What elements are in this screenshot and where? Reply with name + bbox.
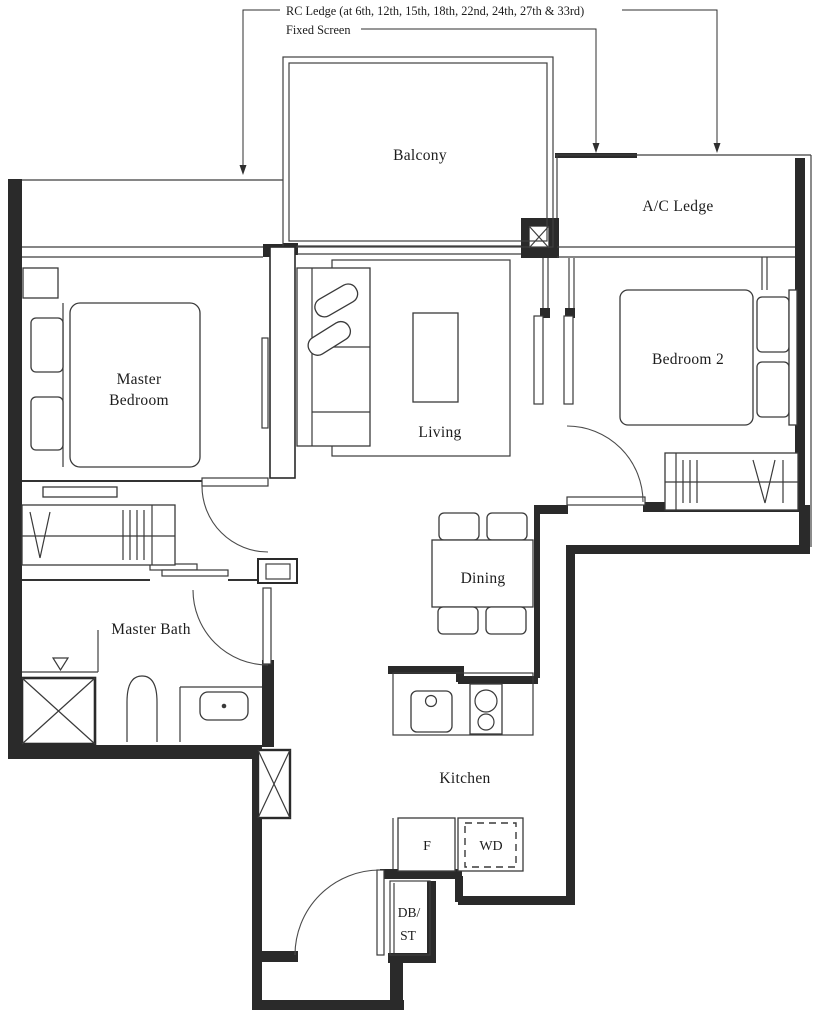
dining-label: Dining <box>461 570 506 587</box>
vanity <box>180 687 262 742</box>
chair <box>487 513 527 540</box>
nightstand <box>23 268 58 298</box>
master-bath-fixtures <box>22 658 262 744</box>
balcony-label: Balcony <box>393 147 447 164</box>
sofa <box>297 268 370 446</box>
bedroom2-label: Bedroom 2 <box>652 351 724 368</box>
fridge-label: F <box>423 839 431 854</box>
kitchen-label: Kitchen <box>439 770 490 787</box>
floor-plan-page: RC Ledge (at 6th, 12th, 15th, 18th, 22nd… <box>0 0 836 1024</box>
coffee-table <box>413 313 458 402</box>
floor-trap-icon <box>53 658 68 670</box>
pillow <box>31 397 63 450</box>
db-st-label-line2: ST <box>400 928 417 943</box>
entry-door <box>295 870 384 955</box>
chair <box>438 607 478 634</box>
master-bedroom-furniture <box>22 268 200 565</box>
master-bedroom-door <box>202 478 268 552</box>
pillow <box>757 297 789 352</box>
chair <box>439 513 479 540</box>
cooktop <box>470 684 502 734</box>
pillow <box>757 362 789 417</box>
kitchen-sink <box>411 691 452 732</box>
ac-ledge-label: A/C Ledge <box>642 198 713 215</box>
service-shaft-icon <box>529 226 549 248</box>
bedroom2-furniture <box>620 290 798 510</box>
chair <box>486 607 526 634</box>
pillow <box>31 318 63 372</box>
washer-dryer-label: WD <box>479 839 502 854</box>
rc-ledge-annotation: RC Ledge (at 6th, 12th, 15th, 18th, 22nd… <box>286 4 584 18</box>
master-bedroom-label-line1: Master <box>117 371 162 388</box>
corridor-shaft <box>258 750 290 818</box>
master-bath-door <box>193 588 271 665</box>
db-st-label-line1: DB/ <box>398 905 421 920</box>
leader-annotations: RC Ledge (at 6th, 12th, 15th, 18th, 22nd… <box>240 4 721 175</box>
bench <box>43 487 117 497</box>
bedroom2-wardrobe <box>665 453 798 510</box>
master-bath-label: Master Bath <box>111 621 191 638</box>
fixed-screen-annotation: Fixed Screen <box>286 23 351 37</box>
master-bedroom-label-line2: Bedroom <box>109 392 169 409</box>
floor-plan-drawing: RC Ledge (at 6th, 12th, 15th, 18th, 22nd… <box>0 0 836 1024</box>
headboard <box>789 290 797 425</box>
bedroom2-door <box>567 426 645 505</box>
divider-wall <box>270 247 295 478</box>
sliding-panel <box>262 338 268 428</box>
living-room-furniture <box>262 247 510 478</box>
master-wardrobe <box>22 505 175 565</box>
living-label: Living <box>418 424 461 441</box>
toilet <box>127 676 157 742</box>
shower <box>22 678 95 744</box>
